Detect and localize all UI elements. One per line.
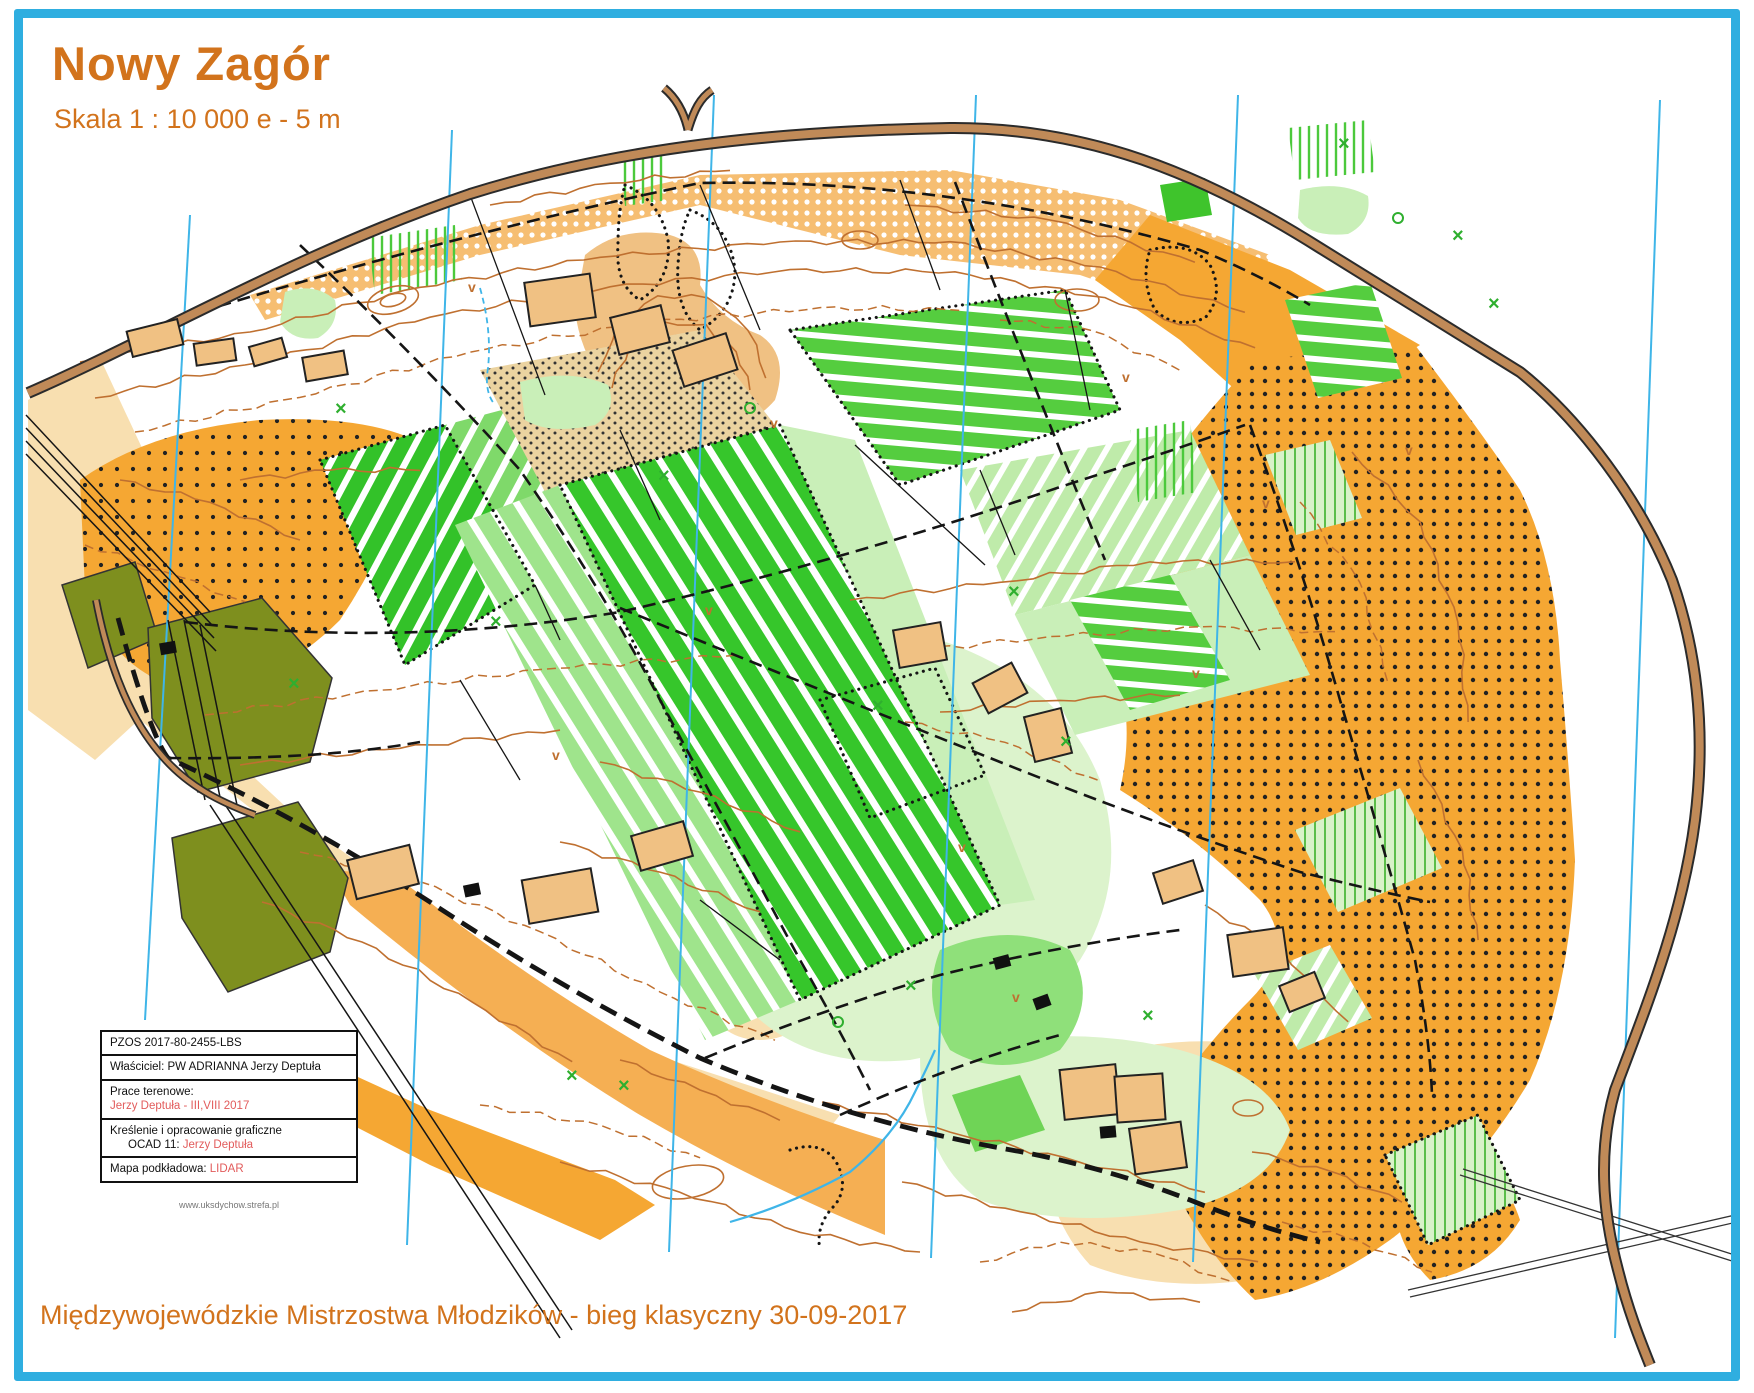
owner-line: Właściciel: PW ADRIANNA Jerzy Deptuła (102, 1056, 356, 1080)
svg-text:v: v (1192, 665, 1200, 681)
basemap-line: Mapa podkładowa: LIDAR (102, 1158, 356, 1180)
svg-text:v: v (1122, 369, 1130, 385)
credits-box: PZOS 2017-80-2455-LBS Właściciel: PW ADR… (100, 1030, 358, 1183)
drafting-label: Kreślenie i opracowanie graficzne (110, 1125, 282, 1137)
svg-text:×: × (618, 1075, 630, 1097)
svg-text:×: × (1452, 225, 1464, 247)
event-caption: Międzywojewódzkie Mistrzostwa Młodzików … (40, 1300, 907, 1331)
registry-number: PZOS 2017-80-2455-LBS (102, 1032, 356, 1056)
fieldwork-line: Prace terenowe: Jerzy Deptuła - III,VIII… (102, 1081, 356, 1120)
svg-text:v: v (1405, 442, 1413, 458)
svg-text:×: × (566, 1065, 578, 1087)
svg-text:v: v (770, 415, 778, 431)
svg-text:×: × (872, 695, 884, 717)
svg-text:v: v (468, 279, 476, 295)
svg-text:×: × (335, 398, 347, 420)
svg-text:v: v (705, 602, 713, 618)
drafting-value: Jerzy Deptuła (183, 1139, 253, 1151)
drafting-sub-label: OCAD 11: (110, 1139, 180, 1151)
basemap-value: LIDAR (210, 1163, 244, 1175)
svg-text:×: × (1008, 581, 1020, 603)
svg-text:×: × (288, 673, 300, 695)
basemap-label: Mapa podkładowa: (110, 1163, 207, 1175)
svg-text:×: × (905, 975, 917, 997)
svg-text:×: × (658, 465, 670, 487)
svg-text:×: × (490, 611, 502, 633)
svg-text:v: v (958, 839, 966, 855)
svg-text:×: × (1142, 1005, 1154, 1027)
svg-text:×: × (1338, 133, 1350, 155)
drafting-line: Kreślenie i opracowanie graficzne OCAD 1… (102, 1120, 356, 1159)
website-url: www.uksdychow.strefa.pl (100, 1200, 358, 1210)
svg-text:v: v (552, 747, 560, 763)
map-scale-note: Skala 1 : 10 000 e - 5 m (54, 104, 341, 135)
orienteering-map-canvas: ××××××××××××××vvvvvvvvvv (0, 0, 1754, 1393)
svg-text:×: × (1060, 731, 1072, 753)
svg-text:×: × (1488, 293, 1500, 315)
fieldwork-label: Prace terenowe: (110, 1086, 194, 1098)
map-sheet: Nowy Zagór Skala 1 : 10 000 e - 5 m (0, 0, 1754, 1393)
map-title: Nowy Zagór (52, 36, 331, 91)
svg-text:v: v (1262, 495, 1270, 511)
svg-text:v: v (1012, 989, 1020, 1005)
fieldwork-value: Jerzy Deptuła - III,VIII 2017 (110, 1100, 249, 1112)
